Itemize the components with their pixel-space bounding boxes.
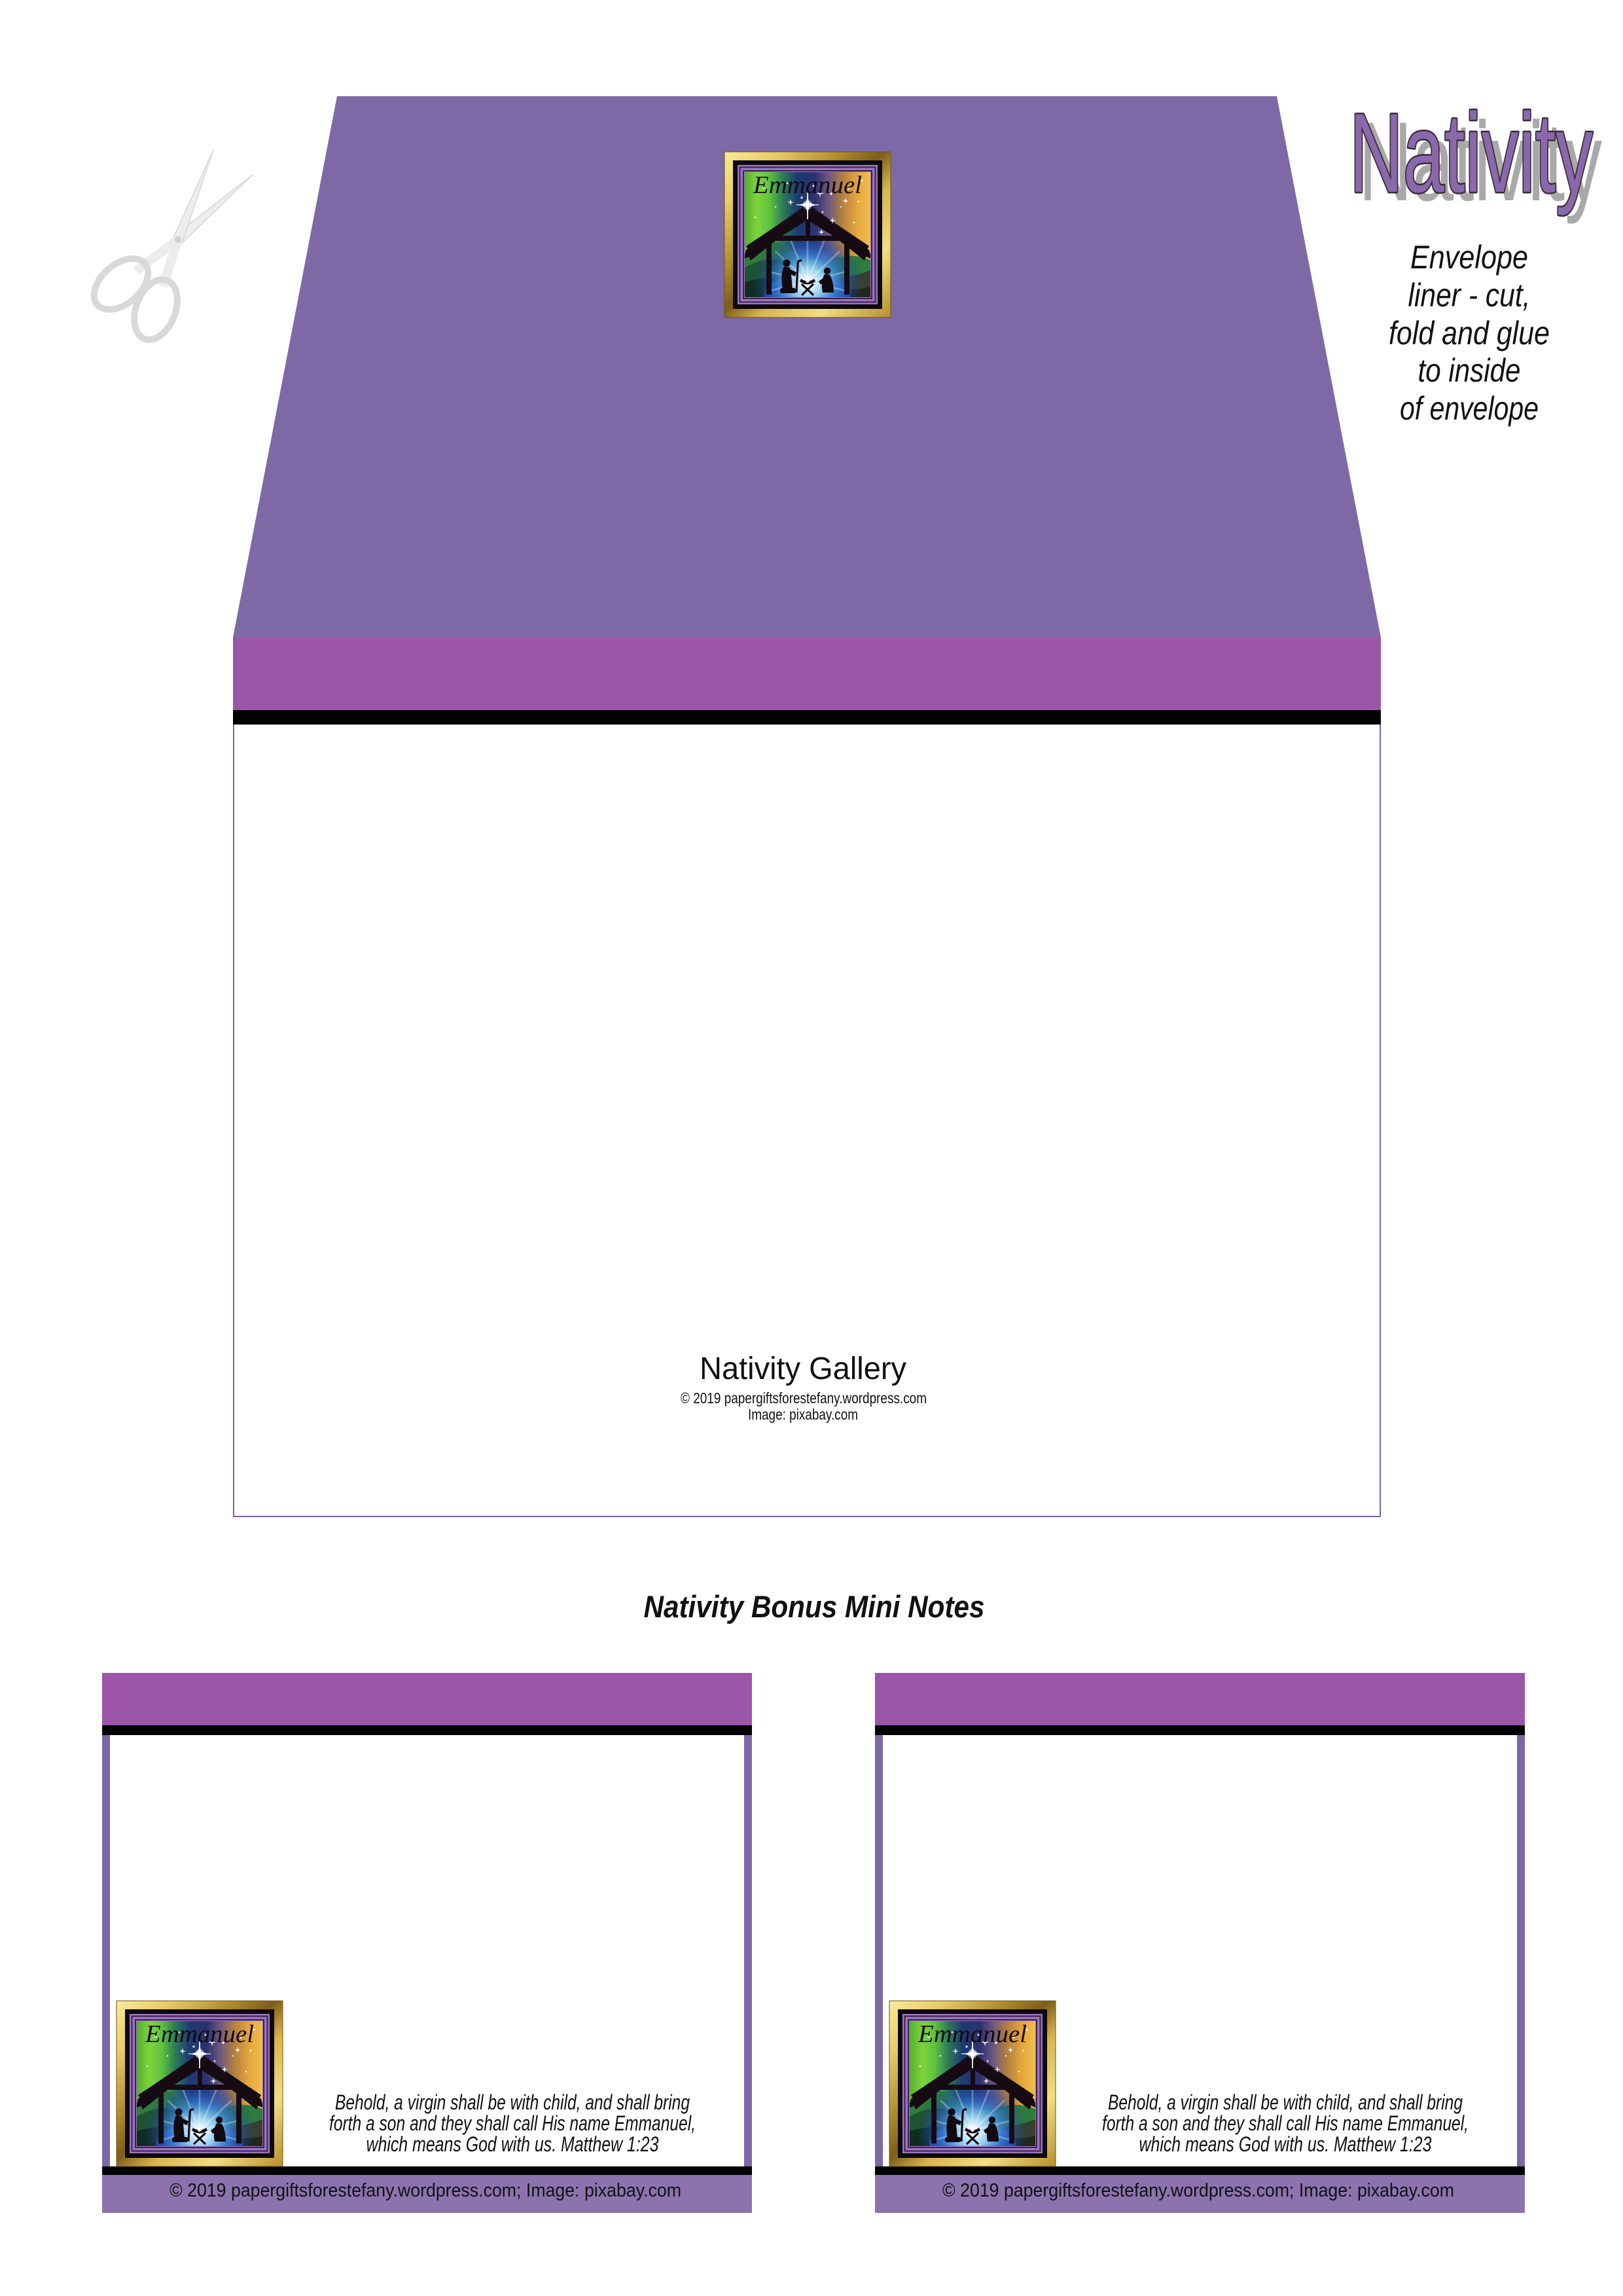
svg-text:which means God with us. Matt: which means God with us. Matthew 1:23 [1139, 2132, 1432, 2156]
svg-text:© 2019 papergiftsforestefany.w: © 2019 papergiftsforestefany.wordpress.c… [169, 2180, 681, 2201]
svg-text:which means God with us. Matt: which means God with us. Matthew 1:23 [366, 2132, 659, 2156]
svg-text:forth a son and they shall cal: forth a son and they shall call His name… [1102, 2111, 1469, 2135]
svg-text:Nativity Gallery: Nativity Gallery [700, 1352, 906, 1386]
svg-text:Behold, a virgin shall be with: Behold, a virgin shall be with child, an… [335, 2090, 690, 2114]
svg-text:© 2019 papergiftsforestefany.w: © 2019 papergiftsforestefany.wordpress.c… [681, 1390, 927, 1407]
svg-text:© 2019 papergiftsforestefany.w: © 2019 papergiftsforestefany.wordpress.c… [942, 2180, 1454, 2201]
svg-text:forth a son and they shall cal: forth a son and they shall call His name… [329, 2111, 696, 2135]
svg-text:Image: pixabay.com: Image: pixabay.com [748, 1406, 858, 1423]
svg-text:Behold, a virgin shall be with: Behold, a virgin shall be with child, an… [1108, 2090, 1463, 2114]
svg-text:of envelope: of envelope [1400, 390, 1539, 427]
svg-text:Nativity: Nativity [1349, 90, 1593, 216]
svg-text:fold and glue: fold and glue [1389, 315, 1550, 351]
svg-text:Envelope: Envelope [1410, 239, 1528, 276]
svg-text:liner - cut,: liner - cut, [1408, 277, 1531, 314]
svg-text:Nativity Bonus Mini Notes: Nativity Bonus Mini Notes [644, 1589, 985, 1624]
svg-text:to inside: to inside [1418, 352, 1521, 389]
